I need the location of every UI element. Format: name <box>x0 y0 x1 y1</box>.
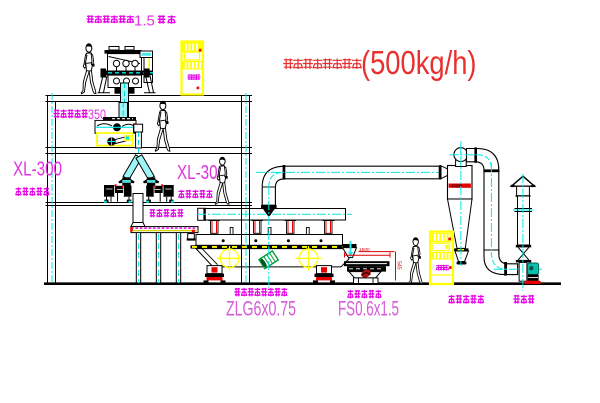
svg-text:545: 545 <box>396 261 402 270</box>
svg-text:1.5: 1.5 <box>134 13 155 30</box>
svg-text:(500kg/h): (500kg/h) <box>361 45 477 82</box>
svg-text:XL-300: XL-300 <box>13 159 62 181</box>
svg-text:1500: 1500 <box>359 247 370 253</box>
svg-text:FS0.6x1.5: FS0.6x1.5 <box>338 298 399 321</box>
svg-text:ZLG6x0.75: ZLG6x0.75 <box>226 298 296 321</box>
